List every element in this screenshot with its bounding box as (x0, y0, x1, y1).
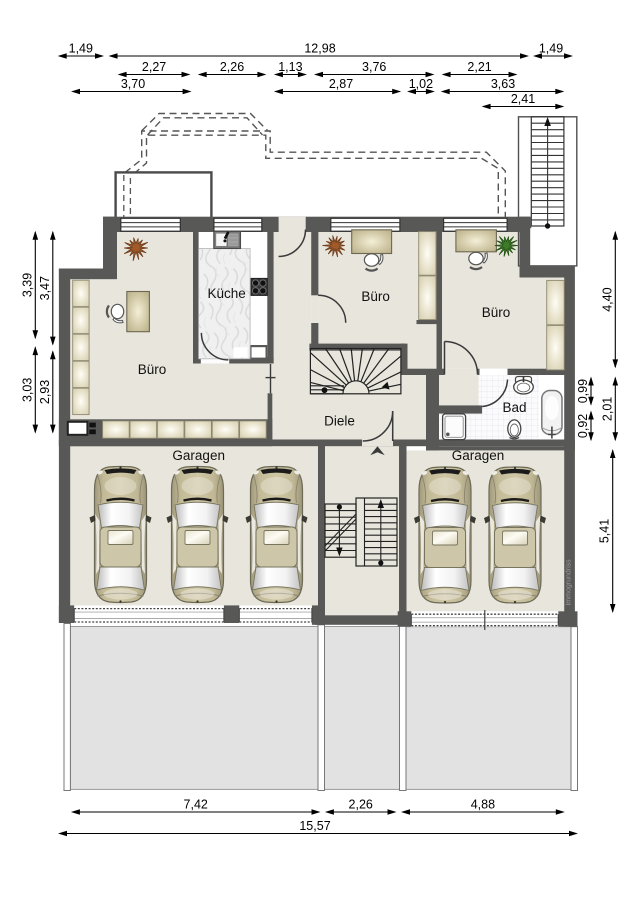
svg-text:Garagen: Garagen (452, 448, 505, 463)
svg-text:0,99: 0,99 (576, 379, 590, 403)
svg-text:1,13: 1,13 (278, 60, 302, 74)
svg-text:2,01: 2,01 (600, 397, 614, 421)
svg-text:Büro: Büro (482, 305, 511, 320)
svg-text:2,87: 2,87 (329, 77, 353, 91)
svg-text:2,26: 2,26 (349, 798, 373, 812)
svg-text:1,49: 1,49 (69, 42, 93, 56)
svg-text:0,92: 0,92 (576, 414, 590, 438)
svg-text:Garagen: Garagen (172, 448, 225, 463)
svg-text:1,49: 1,49 (539, 42, 563, 56)
svg-text:4,40: 4,40 (600, 287, 614, 311)
svg-text:Immogrundriss: Immogrundriss (566, 559, 573, 606)
svg-text:2,26: 2,26 (220, 60, 244, 74)
svg-text:2,27: 2,27 (142, 60, 166, 74)
svg-text:Büro: Büro (361, 289, 390, 304)
svg-text:3,03: 3,03 (20, 378, 34, 402)
svg-text:15,57: 15,57 (299, 819, 330, 833)
svg-text:Küche: Küche (207, 286, 245, 301)
svg-text:5,41: 5,41 (598, 519, 612, 543)
svg-text:3,63: 3,63 (491, 77, 515, 91)
svg-text:Diele: Diele (324, 414, 355, 429)
svg-text:Büro: Büro (138, 362, 167, 377)
svg-text:4,88: 4,88 (471, 798, 495, 812)
svg-text:3,47: 3,47 (38, 276, 52, 300)
svg-text:2,93: 2,93 (38, 380, 52, 404)
svg-text:3,39: 3,39 (20, 273, 34, 297)
svg-text:1,02: 1,02 (409, 77, 433, 91)
svg-text:3,76: 3,76 (362, 60, 386, 74)
svg-text:7,42: 7,42 (184, 798, 208, 812)
svg-text:2,21: 2,21 (467, 60, 491, 74)
svg-text:3,70: 3,70 (121, 77, 145, 91)
svg-text:Bad: Bad (502, 400, 526, 415)
svg-text:2,41: 2,41 (511, 92, 535, 106)
svg-text:12,98: 12,98 (304, 42, 335, 56)
